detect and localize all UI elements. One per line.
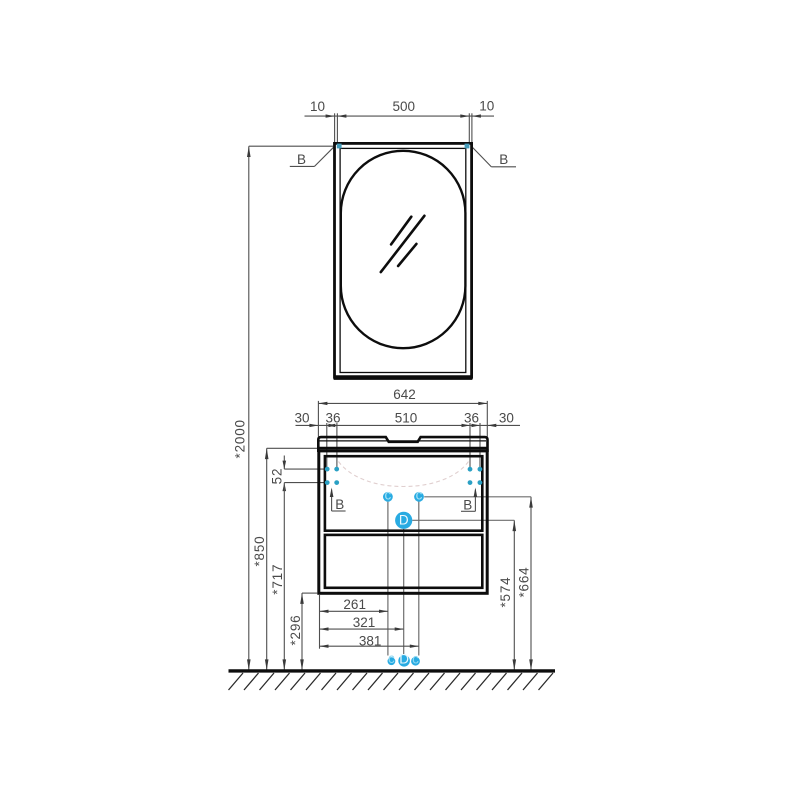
svg-text:c: c <box>412 651 419 666</box>
svg-text:*2000: *2000 <box>233 419 248 458</box>
svg-text:c: c <box>388 651 395 666</box>
svg-text:*296: *296 <box>288 615 303 646</box>
svg-text:10: 10 <box>310 99 325 114</box>
svg-text:30: 30 <box>294 411 309 426</box>
svg-text:*664: *664 <box>516 567 531 598</box>
svg-text:B: B <box>297 152 306 167</box>
svg-text:36: 36 <box>464 411 479 426</box>
svg-text:*574: *574 <box>498 577 513 608</box>
svg-text:52: 52 <box>269 468 284 485</box>
svg-text:500: 500 <box>393 99 416 114</box>
svg-text:c: c <box>385 487 392 502</box>
svg-text:642: 642 <box>393 387 416 402</box>
svg-text:*850: *850 <box>252 536 267 567</box>
svg-text:B: B <box>335 497 344 512</box>
svg-text:*717: *717 <box>270 564 285 595</box>
svg-text:30: 30 <box>499 411 514 426</box>
svg-text:10: 10 <box>479 99 494 114</box>
svg-text:D: D <box>399 513 409 528</box>
svg-text:B: B <box>499 152 508 167</box>
svg-text:c: c <box>416 487 423 502</box>
svg-text:321: 321 <box>353 615 376 630</box>
svg-text:36: 36 <box>325 411 340 426</box>
svg-text:261: 261 <box>343 597 366 612</box>
svg-text:B: B <box>463 497 472 512</box>
svg-text:381: 381 <box>359 633 382 648</box>
svg-text:D: D <box>399 651 409 666</box>
svg-text:510: 510 <box>395 411 418 426</box>
